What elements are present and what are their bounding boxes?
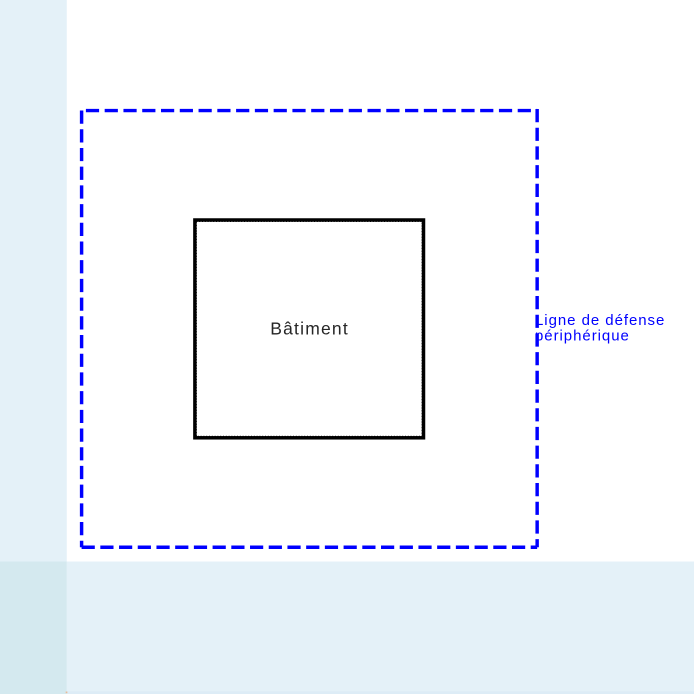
svg-text:Bâtiment: Bâtiment bbox=[270, 319, 349, 339]
svg-text:périphérique: périphérique bbox=[535, 328, 630, 345]
